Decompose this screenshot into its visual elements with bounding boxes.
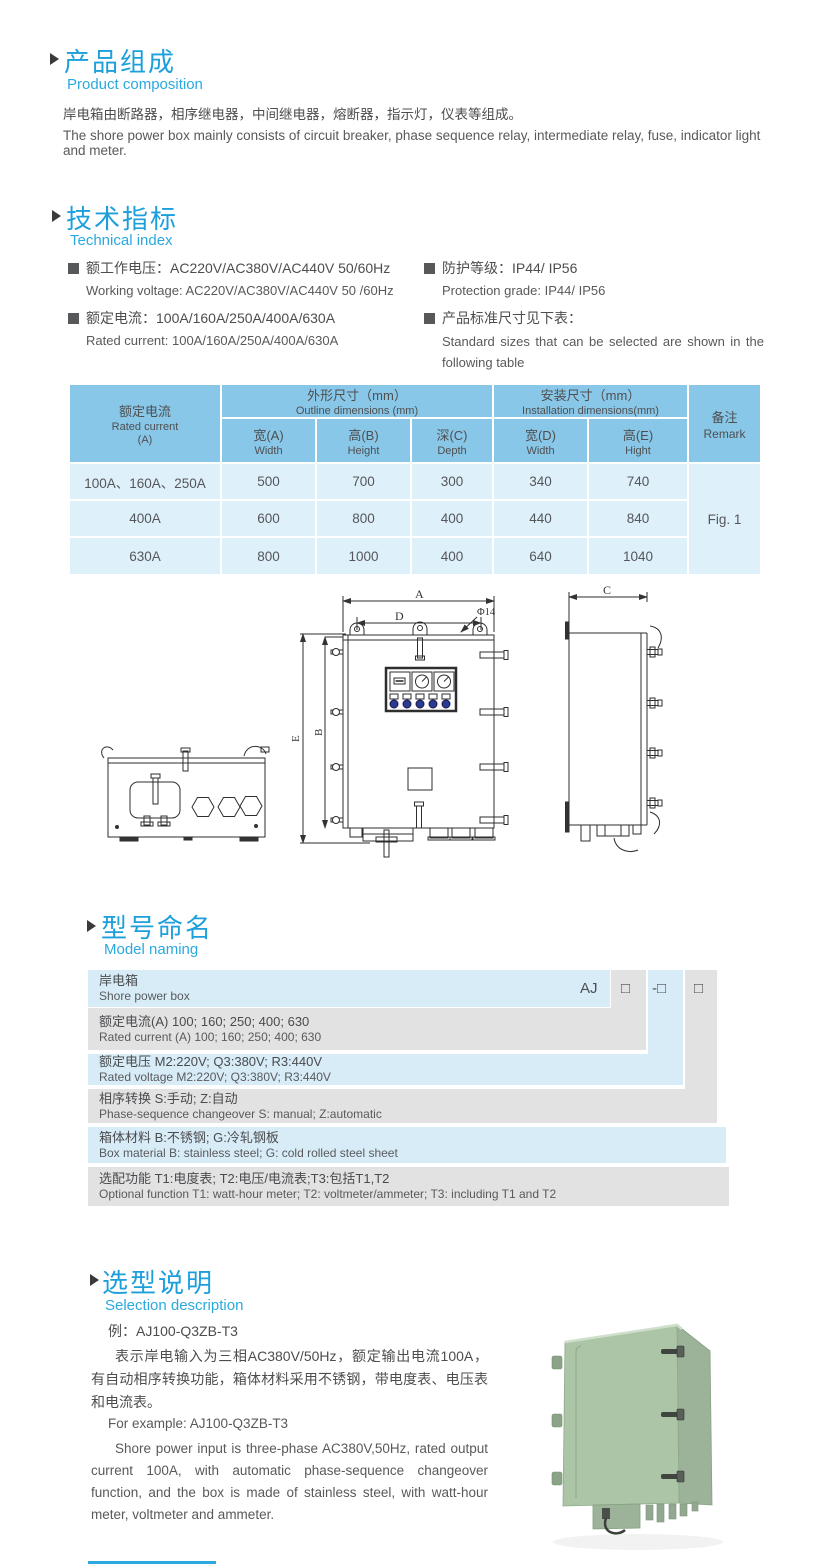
section-subtitle-technical: Technical index — [70, 232, 173, 249]
col-header-remark: 备注 Remark — [688, 384, 761, 463]
model-code-box3: □ — [694, 980, 703, 997]
bottom-view — [102, 746, 269, 841]
model-code-box1: □ — [621, 980, 630, 997]
model-naming-diagram: 岸电箱 Shore power box 额定电流(A) 100; 160; 25… — [88, 968, 729, 1208]
cell-value: 800 — [316, 500, 411, 537]
spec-item: 产品标准尺寸见下表： — [424, 308, 582, 328]
product-photo — [530, 1290, 830, 1568]
header-text: Remark — [689, 427, 760, 441]
dim-label-d: D — [395, 609, 404, 623]
spec-text-en: Protection grade: IP44/ IP56 — [442, 283, 605, 298]
square-bullet-icon — [68, 313, 79, 324]
selection-example-en: For example: AJ100-Q3ZB-T3 — [108, 1416, 288, 1431]
cell-value: 1000 — [316, 537, 411, 575]
section-subtitle-naming: Model naming — [104, 941, 198, 958]
cell-current: 100A、160A、250A — [69, 463, 221, 500]
section-subtitle-composition: Product composition — [67, 76, 203, 93]
model-code-box2: -□ — [652, 980, 666, 997]
square-bullet-icon — [424, 313, 435, 324]
cell-current: 400A — [69, 500, 221, 537]
cell-remark: Fig. 1 — [688, 463, 761, 575]
square-bullet-icon — [68, 263, 79, 274]
naming-row-optional: 选配功能 T1:电度表; T2:电压/电流表;T3:包括T1,T2 Option… — [88, 1167, 729, 1206]
selection-example-cn: 例：AJ100-Q3ZB-T3 — [108, 1321, 238, 1341]
section-arrow-icon — [87, 920, 96, 932]
header-text: (A) — [70, 434, 220, 446]
header-text: 安装尺寸（mm） — [494, 385, 687, 404]
dim-label-a: A — [415, 587, 424, 601]
dim-label-b: B — [313, 729, 325, 736]
cell-value: 440 — [493, 500, 588, 537]
section-arrow-icon — [52, 210, 61, 222]
composition-text-cn: 岸电箱由断路器，相序继电器，中间继电器，熔断器，指示灯，仪表等组成。 — [63, 103, 522, 123]
hole-label: Φ14 — [477, 607, 496, 618]
side-latches — [647, 626, 662, 834]
dim-label-c: C — [603, 583, 611, 597]
col-group-install: 安装尺寸（mm） Installation dimensions(mm) — [493, 384, 688, 418]
section-arrow-icon — [90, 1274, 99, 1286]
cell-current: 630A — [69, 537, 221, 575]
col-header-width-d: 宽(D)Width — [493, 418, 588, 463]
square-bullet-icon — [424, 263, 435, 274]
col-header-height-b: 高(B)Height — [316, 418, 411, 463]
naming-row-product: 岸电箱 Shore power box — [88, 970, 610, 1007]
col-header-depth-c: 深(C)Depth — [411, 418, 493, 463]
cell-value: 300 — [411, 463, 493, 500]
cell-value: 740 — [588, 463, 688, 500]
naming-row-current: 额定电流(A) 100; 160; 250; 400; 630 Rated cu… — [88, 1008, 646, 1050]
bottom-fittings — [593, 1502, 698, 1533]
header-text: 外形尺寸（mm） — [222, 385, 492, 404]
naming-row-phase: 相序转换 S:手动; Z:自动 Phase-sequence changeove… — [88, 1089, 717, 1123]
table-row: 630A 800 1000 400 640 1040 — [69, 537, 761, 575]
naming-row-voltage: 额定电压 M2:220V; Q3:380V; R3:440V Rated vol… — [88, 1054, 683, 1085]
header-text: 备注 — [689, 407, 760, 426]
spec-text-cn: 产品标准尺寸见下表： — [442, 310, 582, 326]
selection-body-en: Shore power input is three-phase AC380V,… — [91, 1438, 488, 1526]
front-view — [300, 596, 508, 857]
header-text: Outline dimensions (mm) — [222, 405, 492, 417]
side-view — [566, 592, 663, 852]
header-text: Installation dimensions(mm) — [494, 405, 687, 417]
section-arrow-icon — [50, 53, 59, 65]
model-code-prefix: AJ — [580, 980, 598, 997]
naming-row-material: 箱体材料 B:不锈钢; G:冷轧钢板 Box material B: stain… — [88, 1127, 726, 1163]
section-title-technical: 技术指标 — [66, 199, 178, 236]
spec-text-cn: 额工作电压：AC220V/AC380V/AC440V 50/60Hz — [86, 260, 390, 276]
header-text: 额定电流 — [70, 401, 220, 420]
cell-value: 1040 — [588, 537, 688, 575]
cell-value: 700 — [316, 463, 411, 500]
section-title-naming: 型号命名 — [101, 908, 213, 945]
spec-item: 防护等级：IP44/ IP56 — [424, 258, 577, 278]
spec-text-en: Standard sizes that can be selected are … — [442, 331, 764, 373]
spec-text-en: Rated current: 100A/160A/250A/400A/630A — [86, 333, 338, 348]
table-row: 400A 600 800 400 440 840 — [69, 500, 761, 537]
col-header-hight-e: 高(E)Hight — [588, 418, 688, 463]
spec-item: 额定电流：100A/160A/250A/400A/630A — [68, 308, 335, 328]
col-header-width-a: 宽(A)Width — [221, 418, 316, 463]
cell-value: 600 — [221, 500, 316, 537]
cell-value: 400 — [411, 537, 493, 575]
cell-value: 400 — [411, 500, 493, 537]
section-subtitle-selection: Selection description — [105, 1297, 243, 1314]
selection-body-cn: 表示岸电输入为三相AC380V/50Hz，额定输出电流100A，有自动相序转换功… — [91, 1345, 488, 1414]
col-header-rated-current: 额定电流 Rated current (A) — [69, 384, 221, 463]
dim-label-e: E — [290, 735, 302, 742]
spec-text-en: Working voltage: AC220V/AC380V/AC440V 50… — [86, 283, 394, 298]
table-row: 100A、160A、250A 500 700 300 340 740 Fig. … — [69, 463, 761, 500]
technical-drawing: A D Φ14 E B C — [0, 580, 830, 910]
spec-text-cn: 额定电流：100A/160A/250A/400A/630A — [86, 310, 335, 326]
spec-item: 额工作电压：AC220V/AC380V/AC440V 50/60Hz — [68, 258, 390, 278]
size-table: 额定电流 Rated current (A) 外形尺寸（mm） Outline … — [68, 383, 762, 576]
cell-value: 640 — [493, 537, 588, 575]
composition-text-en: The shore power box mainly consists of c… — [63, 128, 773, 158]
spec-text-cn: 防护等级：IP44/ IP56 — [442, 260, 577, 276]
header-text: Rated current — [70, 421, 220, 433]
cell-value: 840 — [588, 500, 688, 537]
col-group-outline: 外形尺寸（mm） Outline dimensions (mm) — [221, 384, 493, 418]
footer-rule — [88, 1561, 216, 1564]
cell-value: 340 — [493, 463, 588, 500]
section-title-selection: 选型说明 — [102, 1263, 214, 1300]
cell-value: 800 — [221, 537, 316, 575]
cell-value: 500 — [221, 463, 316, 500]
section-title-composition: 产品组成 — [64, 42, 176, 79]
door-hinges — [552, 1356, 562, 1485]
catalog-page: 产品组成 Product composition 岸电箱由断路器，相序继电器，中… — [0, 0, 830, 1568]
